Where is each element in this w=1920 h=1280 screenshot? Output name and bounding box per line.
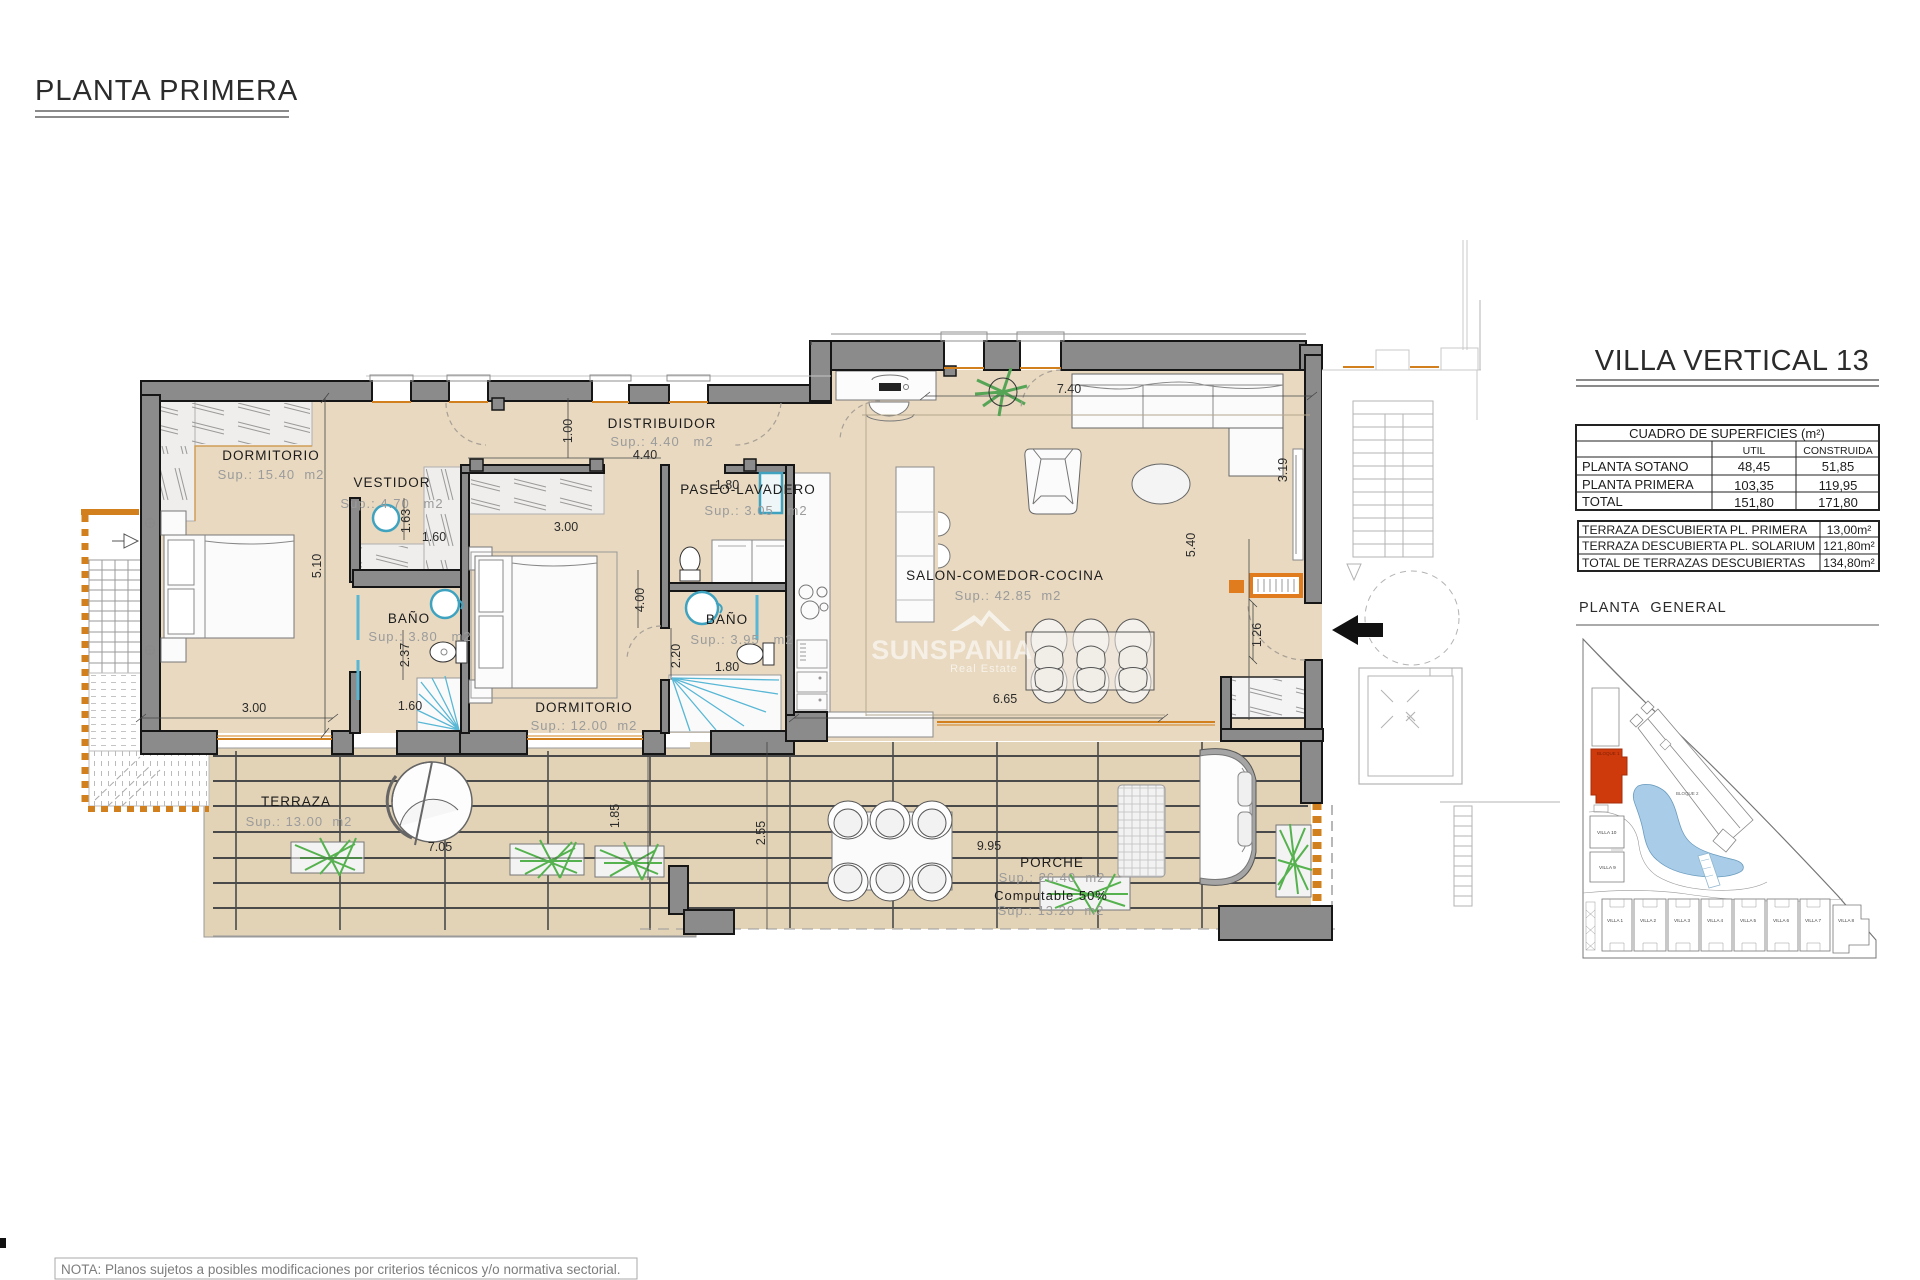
svg-text:6.65: 6.65 [993, 692, 1017, 706]
svg-text:DORMITORIO: DORMITORIO [535, 700, 633, 715]
svg-text:SUNSPANIA: SUNSPANIA [871, 635, 1033, 665]
svg-text:5.40: 5.40 [1184, 533, 1198, 557]
svg-text:DISTRIBUIDOR: DISTRIBUIDOR [608, 416, 717, 431]
svg-text:BAÑO: BAÑO [706, 612, 748, 627]
svg-text:PASEO-LAVADERO: PASEO-LAVADERO [680, 482, 816, 497]
svg-text:7.05: 7.05 [428, 840, 452, 854]
svg-text:1.85: 1.85 [608, 804, 622, 828]
svg-text:Sup.: 26.40 m2: Sup.: 26.40 m2 [999, 870, 1106, 885]
svg-text:DORMITORIO: DORMITORIO [222, 448, 320, 463]
svg-text:TOTAL DE TERRAZAS DESCUBIERTAS: TOTAL DE TERRAZAS DESCUBIERTAS [1582, 556, 1805, 570]
svg-text:Sup.: 3.80 m2: Sup.: 3.80 m2 [368, 629, 471, 644]
svg-text:3.00: 3.00 [242, 701, 266, 715]
svg-text:PLANTA PRIMERA: PLANTA PRIMERA [35, 75, 298, 107]
svg-text:2.55: 2.55 [754, 821, 768, 845]
svg-text:1.80: 1.80 [715, 660, 739, 674]
svg-text:BLOQUE 1: BLOQUE 1 [1597, 751, 1620, 756]
svg-text:13,00m²: 13,00m² [1827, 523, 1872, 537]
svg-text:PLANTA SOTANO: PLANTA SOTANO [1582, 459, 1688, 474]
svg-text:4.00: 4.00 [633, 588, 647, 612]
svg-text:9.95: 9.95 [977, 839, 1001, 853]
svg-text:VILLA 5: VILLA 5 [1740, 918, 1757, 923]
svg-text:7.40: 7.40 [1057, 382, 1081, 396]
svg-text:2.37: 2.37 [398, 643, 412, 667]
svg-text:VILLA 1: VILLA 1 [1607, 918, 1624, 923]
svg-text:TERRAZA DESCUBIERTA PL. SOLARI: TERRAZA DESCUBIERTA PL. SOLARIUM [1582, 539, 1815, 553]
svg-text:Sup.: 42.85 m2: Sup.: 42.85 m2 [955, 588, 1062, 603]
svg-text:CUADRO DE SUPERFICIES (m²): CUADRO DE SUPERFICIES (m²) [1629, 426, 1825, 441]
svg-text:151,80: 151,80 [1734, 495, 1774, 510]
svg-text:VILLA 7: VILLA 7 [1805, 918, 1822, 923]
svg-text:Real Estate: Real Estate [950, 663, 1018, 675]
svg-text:103,35: 103,35 [1734, 478, 1774, 493]
svg-text:Sup.: 3.95 m2: Sup.: 3.95 m2 [690, 632, 793, 647]
svg-text:Computable 50%: Computable 50% [994, 888, 1108, 903]
svg-text:TERRAZA DESCUBIERTA PL. PRIMER: TERRAZA DESCUBIERTA PL. PRIMERA [1582, 523, 1808, 537]
svg-text:VILLA VERTICAL 13: VILLA VERTICAL 13 [1595, 345, 1869, 377]
svg-text:BAÑO: BAÑO [388, 611, 430, 626]
svg-text:VILLA 2: VILLA 2 [1640, 918, 1657, 923]
svg-text:51,85: 51,85 [1822, 459, 1855, 474]
svg-text:Sup.: 3.05 m2: Sup.: 3.05 m2 [704, 503, 807, 518]
svg-text:Sup.: 13.20 m2: Sup.: 13.20 m2 [998, 903, 1105, 918]
svg-text:3.00: 3.00 [554, 520, 578, 534]
svg-text:VILLA 6: VILLA 6 [1773, 918, 1790, 923]
svg-text:SALON-COMEDOR-COCINA: SALON-COMEDOR-COCINA [906, 568, 1104, 583]
svg-text:1.26: 1.26 [1250, 623, 1264, 647]
svg-text:CONSTRUIDA: CONSTRUIDA [1803, 445, 1872, 457]
svg-text:171,80: 171,80 [1818, 495, 1858, 510]
svg-text:PORCHE: PORCHE [1020, 855, 1084, 870]
svg-text:3.19: 3.19 [1276, 458, 1290, 482]
svg-text:VILLA 9: VILLA 9 [1599, 865, 1616, 871]
svg-text:NOTA: Planos sujetos a posible: NOTA: Planos sujetos a posibles modifica… [61, 1262, 621, 1277]
svg-text:PLANTA PRIMERA: PLANTA PRIMERA [1582, 477, 1694, 492]
svg-text:48,45: 48,45 [1738, 459, 1771, 474]
svg-text:5.10: 5.10 [310, 554, 324, 578]
svg-text:134,80m²: 134,80m² [1823, 556, 1875, 570]
svg-text:1.60: 1.60 [422, 530, 446, 544]
svg-text:1.63: 1.63 [399, 509, 413, 533]
svg-text:1.60: 1.60 [398, 699, 422, 713]
svg-text:UTIL: UTIL [1743, 445, 1766, 457]
svg-text:TERRAZA: TERRAZA [261, 794, 331, 809]
svg-text:VILLA 3: VILLA 3 [1674, 918, 1691, 923]
svg-text:Sup.: 12.00 m2: Sup.: 12.00 m2 [531, 718, 638, 733]
svg-text:Sup.: 4.70 m2: Sup.: 4.70 m2 [340, 496, 443, 511]
svg-text:VILLA 10: VILLA 10 [1597, 830, 1617, 836]
svg-text:4.40: 4.40 [633, 448, 657, 462]
svg-text:1.80: 1.80 [715, 478, 739, 492]
svg-text:VESTIDOR: VESTIDOR [353, 475, 430, 490]
svg-text:Sup.: 4.40 m2: Sup.: 4.40 m2 [610, 434, 713, 449]
svg-text:VILLA 4: VILLA 4 [1707, 918, 1724, 923]
svg-text:Sup.: 13.00 m2: Sup.: 13.00 m2 [246, 814, 353, 829]
svg-text:BLOQUE 2: BLOQUE 2 [1676, 791, 1699, 796]
svg-text:TOTAL: TOTAL [1582, 494, 1623, 509]
svg-text:Sup.: 15.40 m2: Sup.: 15.40 m2 [218, 467, 325, 482]
svg-text:121,80m²: 121,80m² [1823, 539, 1875, 553]
svg-text:VILLA 8: VILLA 8 [1838, 918, 1855, 923]
svg-text:119,95: 119,95 [1819, 478, 1858, 493]
svg-text:PLANTA GENERAL: PLANTA GENERAL [1579, 600, 1727, 616]
